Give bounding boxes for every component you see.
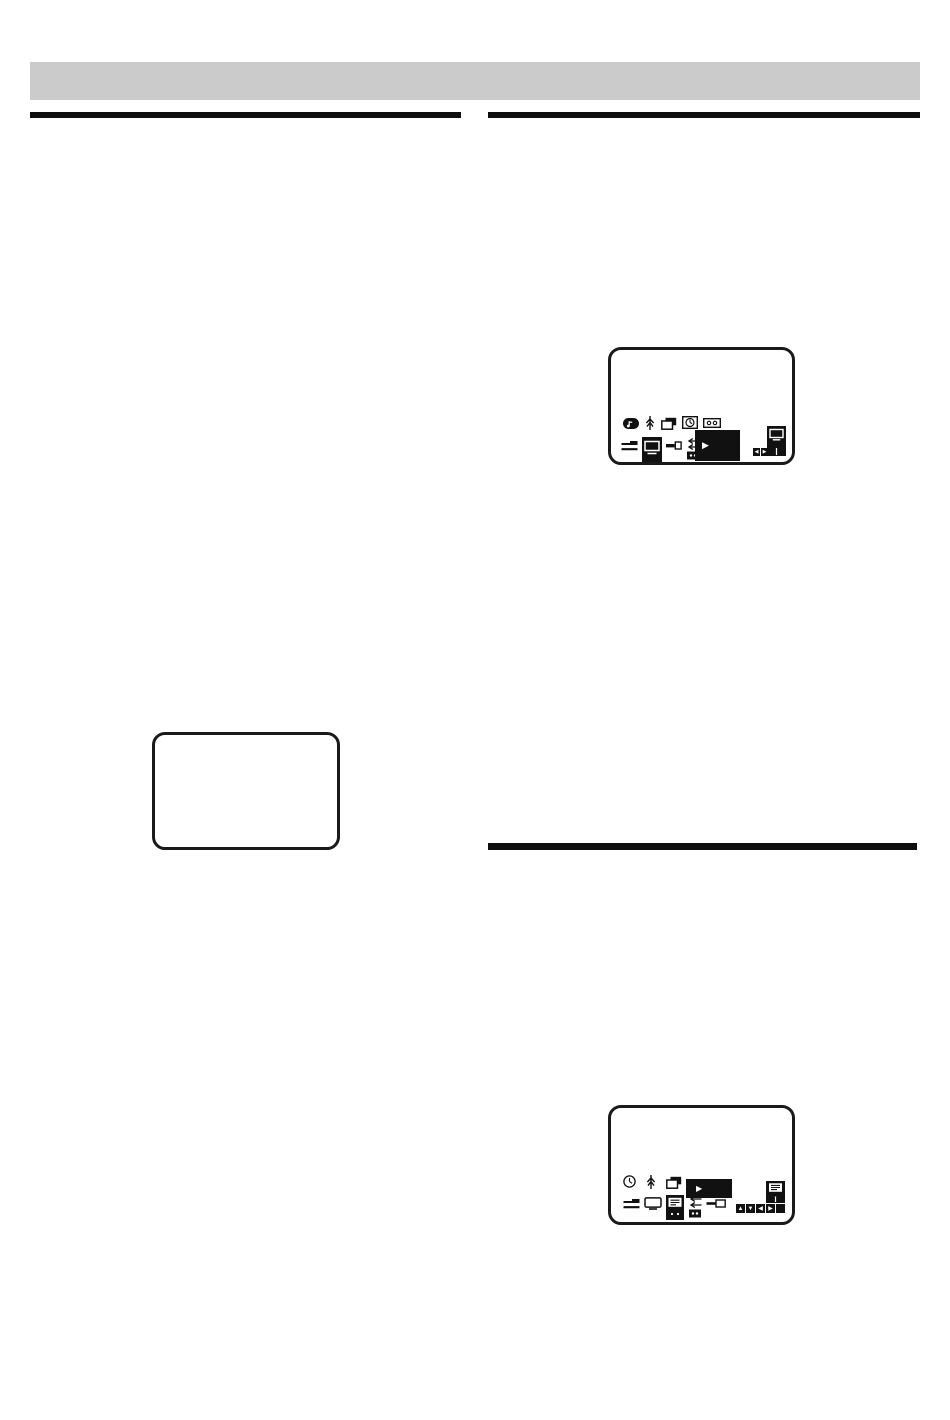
preview-window: ▶: [686, 1179, 732, 1198]
nav-up-button: ▲: [736, 1204, 745, 1213]
play-icon: ▶: [702, 440, 709, 451]
nav-arrow-buttons: ◀▶: [753, 448, 768, 456]
preview-window: ▶: [695, 430, 740, 461]
left-column-rule: [30, 112, 461, 118]
menu-icon-row-bottom: [623, 1195, 726, 1220]
nav-right-button: ▶: [766, 1204, 775, 1213]
manual-page: ▶ ◀▶ ▶ ▲▼◀▶: [0, 0, 950, 1420]
antenna-tree-icon: [645, 1175, 657, 1189]
menu-lines-icon: [621, 441, 638, 451]
key-outline-icon: [706, 1199, 726, 1208]
plug-key-icon: [666, 441, 682, 450]
nav-arrow-buttons: ▲▼◀▶: [736, 1204, 785, 1213]
tv-tall-icon: [767, 426, 786, 456]
tv-selected-icon: [642, 437, 662, 462]
right-column-rule-middle: [488, 843, 917, 850]
tv-menu-screen-diagram-2: ▶ ▲▼◀▶: [608, 1105, 795, 1225]
clock-circle-icon: [623, 1175, 636, 1188]
header-bar: [30, 62, 920, 100]
nav-blank-button: [776, 1204, 785, 1213]
right-column-rule-top: [488, 112, 920, 118]
antenna-tree-icon: [644, 416, 656, 430]
blank-tv-screen-diagram: [152, 732, 340, 850]
menu-icon-row-top: [623, 416, 721, 430]
play-icon: ▶: [696, 1184, 702, 1193]
menu-icon-row-bottom: [621, 437, 700, 462]
repeat-arrows-icon: [688, 1196, 702, 1218]
nav-left-button: ◀: [756, 1204, 765, 1213]
doc-tall-icon: [766, 1181, 785, 1203]
nav-down-button: ▼: [746, 1204, 755, 1213]
page-stack-icon: [666, 1176, 682, 1189]
nav-left-button: ◀: [753, 448, 760, 456]
cassette-icon: [703, 418, 721, 428]
doc-selected-icon: [666, 1195, 684, 1220]
music-note-icon: [623, 418, 639, 429]
clock-box-icon: [682, 416, 698, 429]
tv-outline-icon: [644, 1197, 662, 1210]
menu-lines-icon: [623, 1199, 640, 1209]
tv-menu-screen-diagram-1: ▶ ◀▶: [608, 347, 795, 465]
menu-icon-row-top: [623, 1175, 682, 1189]
page-stack-icon: [661, 417, 677, 430]
nav-right-button: ▶: [761, 448, 768, 456]
